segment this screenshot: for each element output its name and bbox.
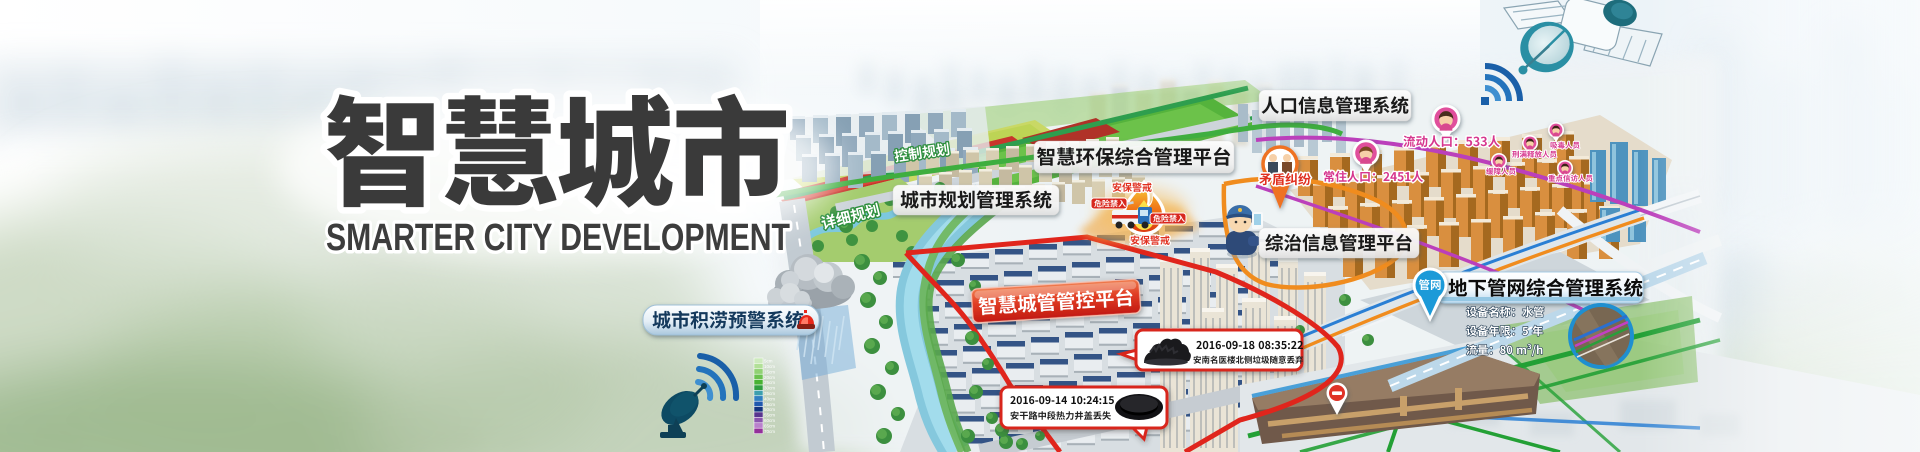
svg-text:25cm: 25cm <box>764 380 775 385</box>
svg-text:5cm: 5cm <box>764 359 773 364</box>
svg-text:15cm: 15cm <box>764 369 775 374</box>
svg-text:45cm: 45cm <box>764 402 775 407</box>
svg-text:10cm: 10cm <box>764 364 775 369</box>
svg-text:65cm: 65cm <box>764 423 775 428</box>
svg-text:SMARTER CITY DEVELOPMENT: SMARTER CITY DEVELOPMENT <box>326 217 790 259</box>
svg-text:50cm: 50cm <box>764 407 775 412</box>
svg-text:35cm: 35cm <box>764 391 775 396</box>
svg-text:40cm: 40cm <box>764 396 775 401</box>
svg-text:60cm: 60cm <box>764 418 775 423</box>
svg-text:30cm: 30cm <box>764 386 775 391</box>
svg-text:55cm: 55cm <box>764 413 775 418</box>
svg-text:70cm: 70cm <box>764 429 775 434</box>
svg-text:20cm: 20cm <box>764 375 775 380</box>
